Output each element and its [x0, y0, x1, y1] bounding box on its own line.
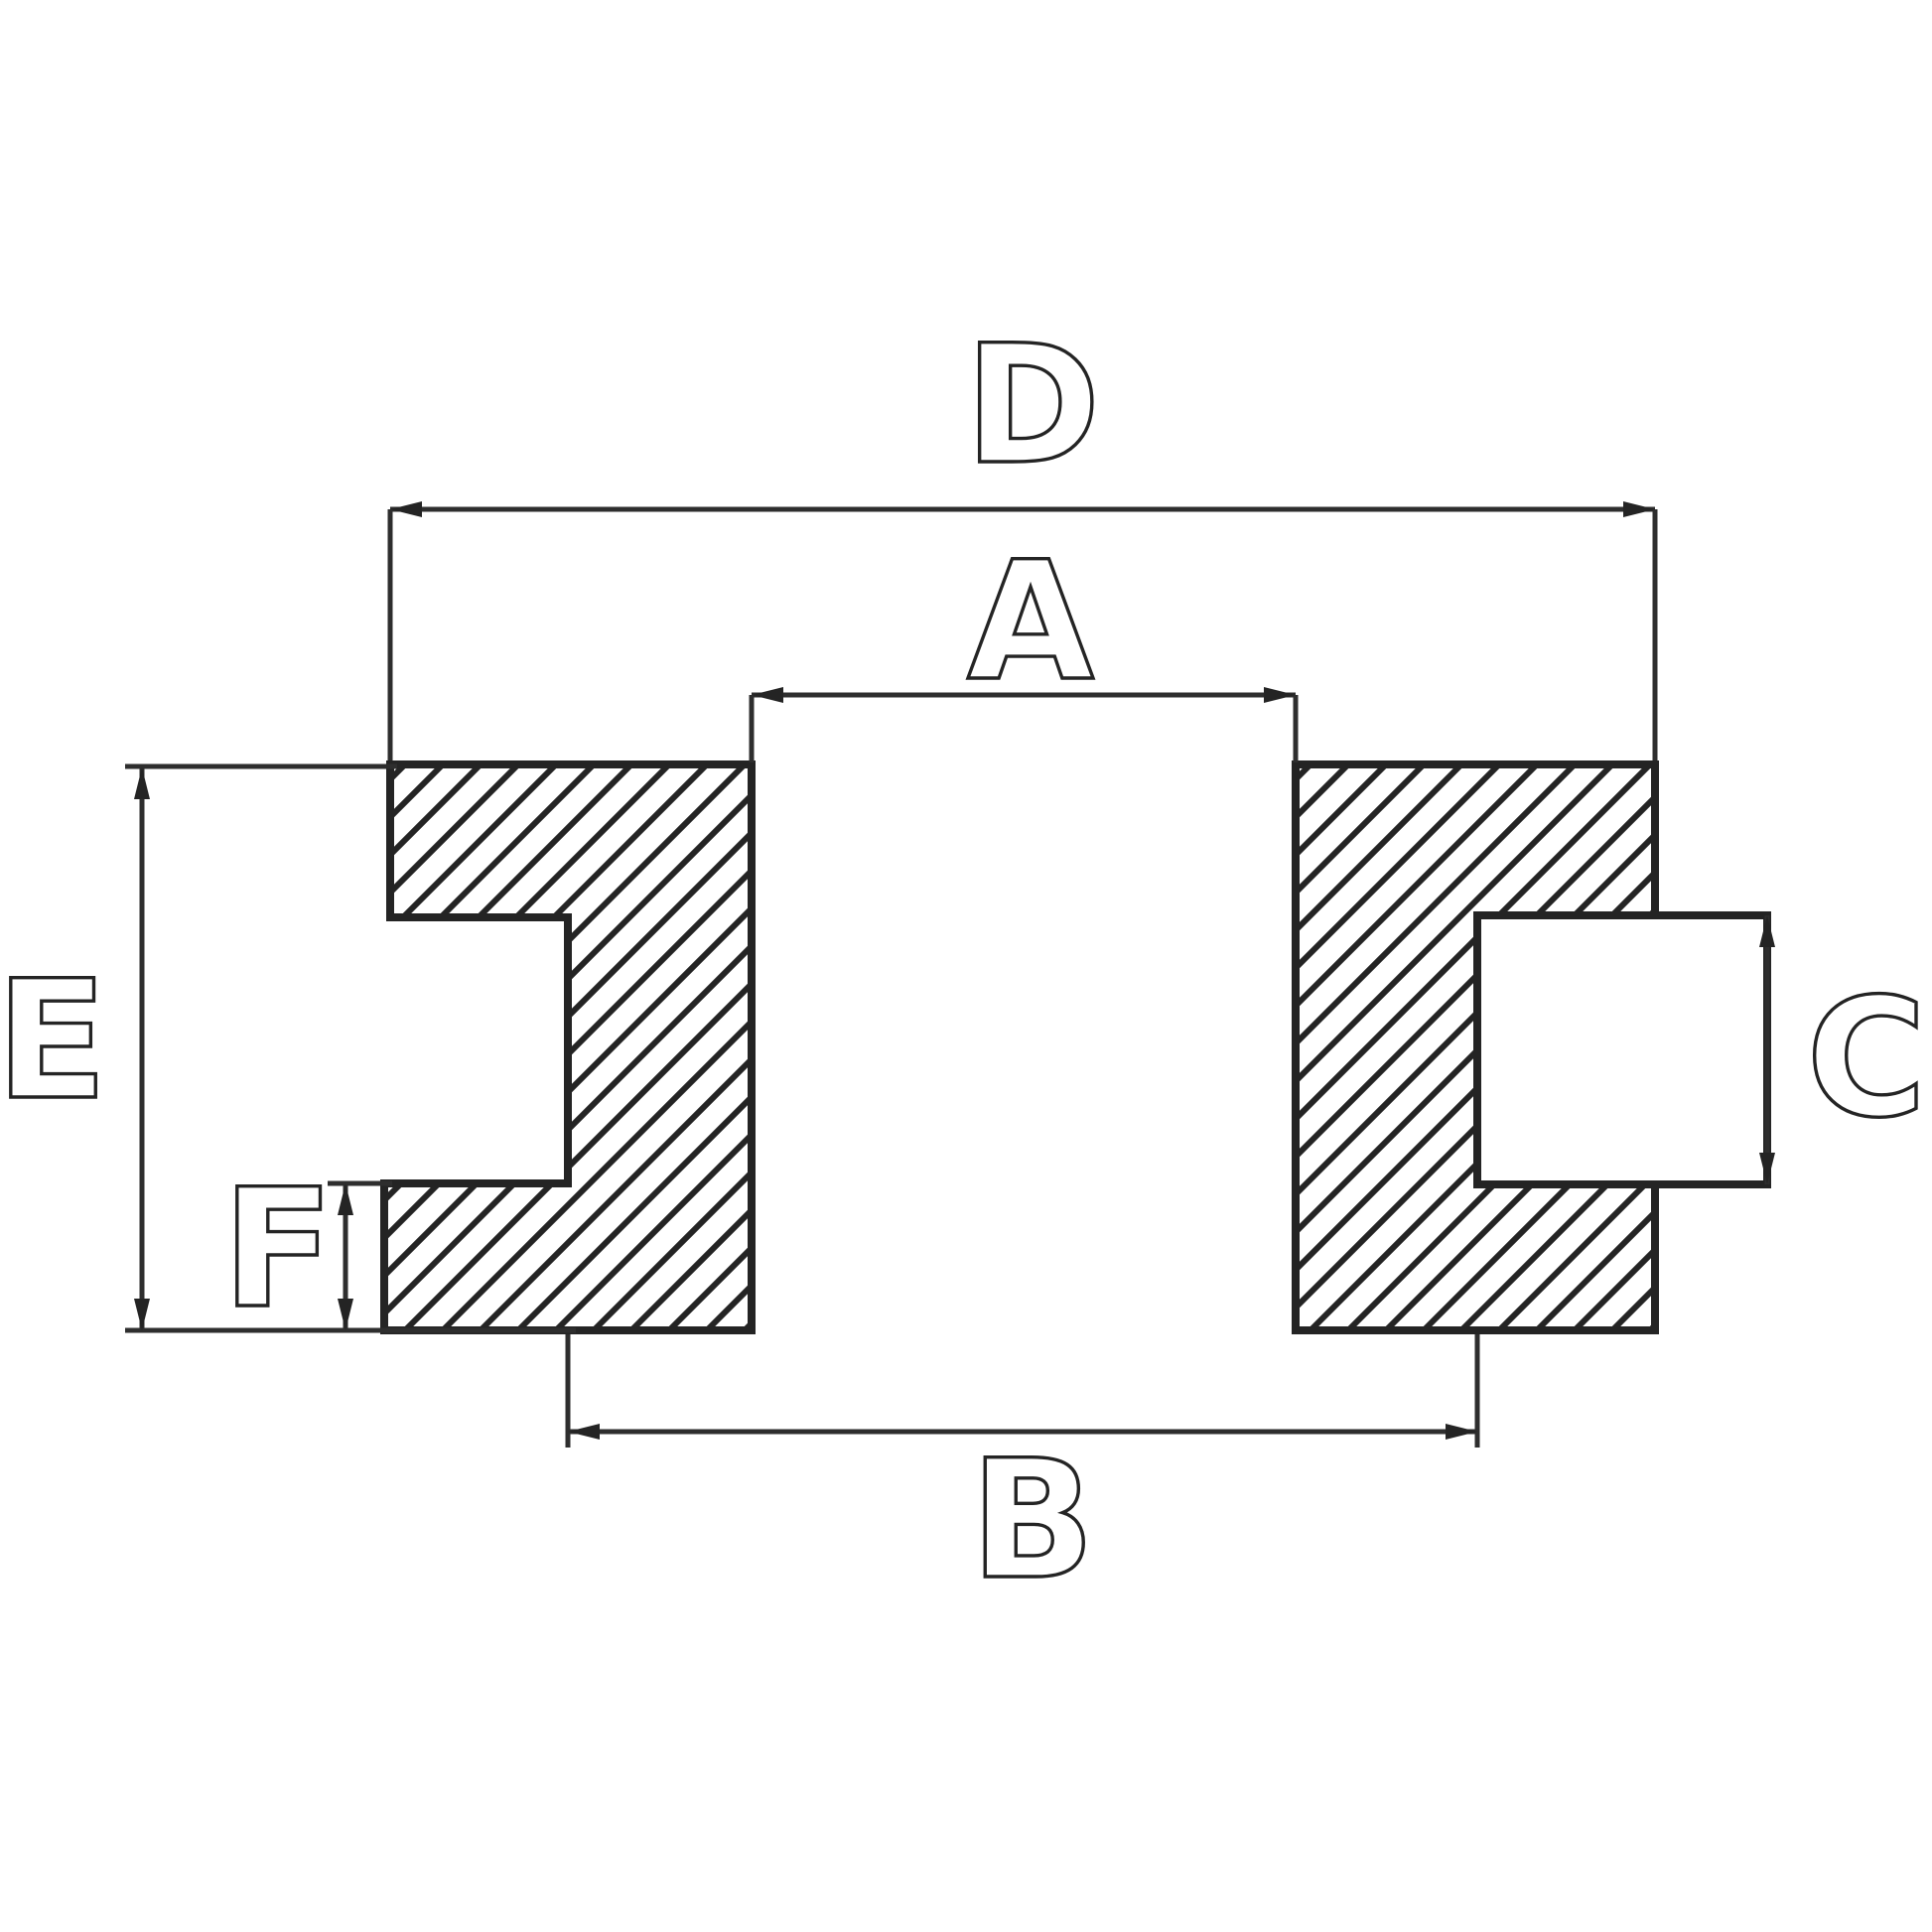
arrow-left-icon: [752, 687, 783, 703]
arrow-down-icon: [338, 1299, 353, 1330]
dimension-F: F: [222, 1154, 392, 1344]
part-left-section: [384, 764, 752, 1330]
technical-drawing-page: D A E C: [0, 0, 1932, 1932]
technical-drawing: D A E C: [0, 0, 1932, 1932]
dimension-label-C: C: [1806, 963, 1926, 1154]
dimension-label-B: B: [970, 1425, 1095, 1615]
dimension-C: C: [1759, 915, 1927, 1184]
dimension-label-D: D: [965, 310, 1101, 500]
arrow-left-icon: [390, 501, 422, 517]
dimension-B: B: [568, 1334, 1477, 1615]
arrow-right-icon: [1264, 687, 1296, 703]
arrow-right-icon: [1446, 1424, 1477, 1440]
boss-outline: [1477, 915, 1767, 1184]
dimension-label-A: A: [967, 526, 1094, 717]
arrow-down-icon: [134, 1299, 150, 1330]
dimension-label-E: E: [0, 945, 107, 1136]
arrow-up-icon: [134, 767, 150, 799]
arrow-up-icon: [338, 1183, 353, 1215]
arrow-left-icon: [568, 1424, 600, 1440]
arrow-right-icon: [1623, 501, 1655, 517]
part-cross-section: [384, 764, 1767, 1330]
dimension-A: A: [752, 526, 1296, 762]
dimension-label-F: F: [222, 1154, 335, 1344]
